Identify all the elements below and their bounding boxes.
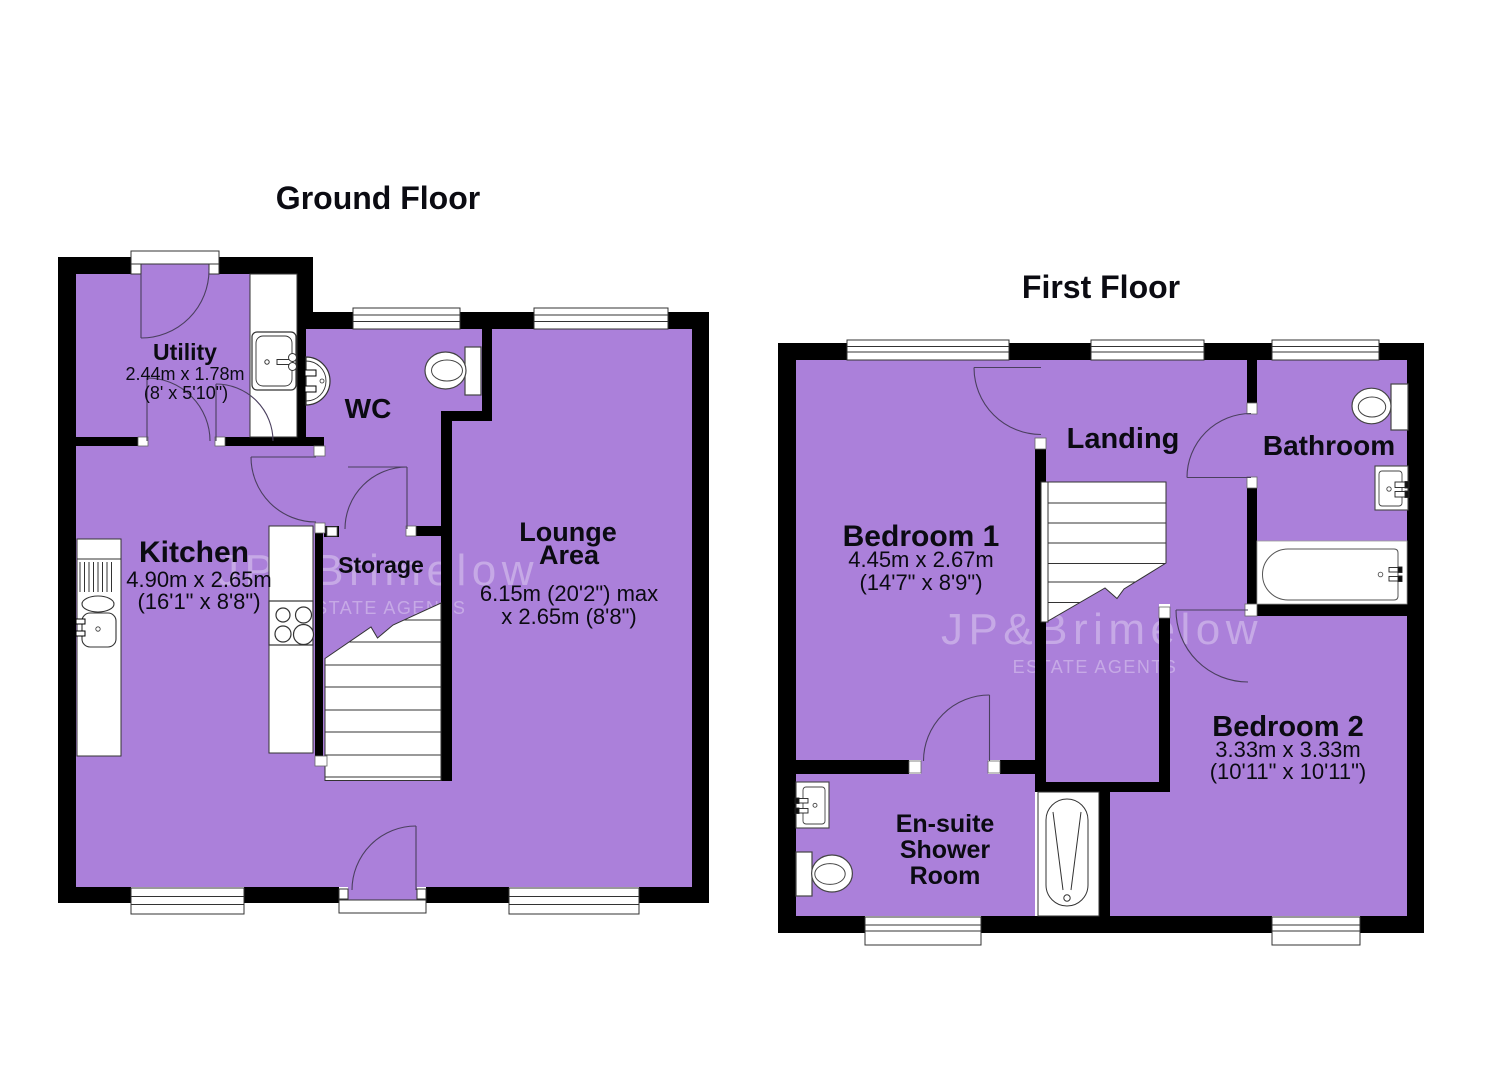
svg-text:JP&Brimelow: JP&Brimelow bbox=[941, 605, 1263, 654]
svg-text:Landing: Landing bbox=[1067, 423, 1180, 455]
svg-text:(16'1" x 8'8"): (16'1" x 8'8") bbox=[137, 589, 260, 614]
svg-text:(10'11" x 10'11"): (10'11" x 10'11") bbox=[1210, 759, 1367, 784]
svg-text:Storage: Storage bbox=[338, 552, 424, 578]
svg-text:x 2.65m (8'8"): x 2.65m (8'8") bbox=[501, 604, 637, 629]
svg-text:Kitchen: Kitchen bbox=[139, 536, 249, 569]
svg-text:Ground Floor: Ground Floor bbox=[276, 180, 480, 216]
svg-text:(8' x 5'10"): (8' x 5'10") bbox=[144, 383, 228, 403]
svg-text:WC: WC bbox=[345, 393, 392, 424]
svg-text:2.44m x 1.78m: 2.44m x 1.78m bbox=[125, 364, 244, 384]
svg-text:Bathroom: Bathroom bbox=[1263, 430, 1395, 461]
svg-text:Area: Area bbox=[539, 540, 600, 570]
svg-text:Utility: Utility bbox=[153, 339, 217, 365]
svg-text:En-suite: En-suite bbox=[896, 810, 995, 838]
svg-text:(14'7" x 8'9"): (14'7" x 8'9") bbox=[859, 570, 982, 595]
svg-text:Shower: Shower bbox=[900, 836, 991, 864]
svg-text:Room: Room bbox=[910, 862, 981, 890]
svg-text:First Floor: First Floor bbox=[1022, 269, 1180, 305]
svg-text:4.45m x 2.67m: 4.45m x 2.67m bbox=[848, 547, 994, 572]
svg-text:6.15m (20'2") max: 6.15m (20'2") max bbox=[480, 581, 658, 606]
